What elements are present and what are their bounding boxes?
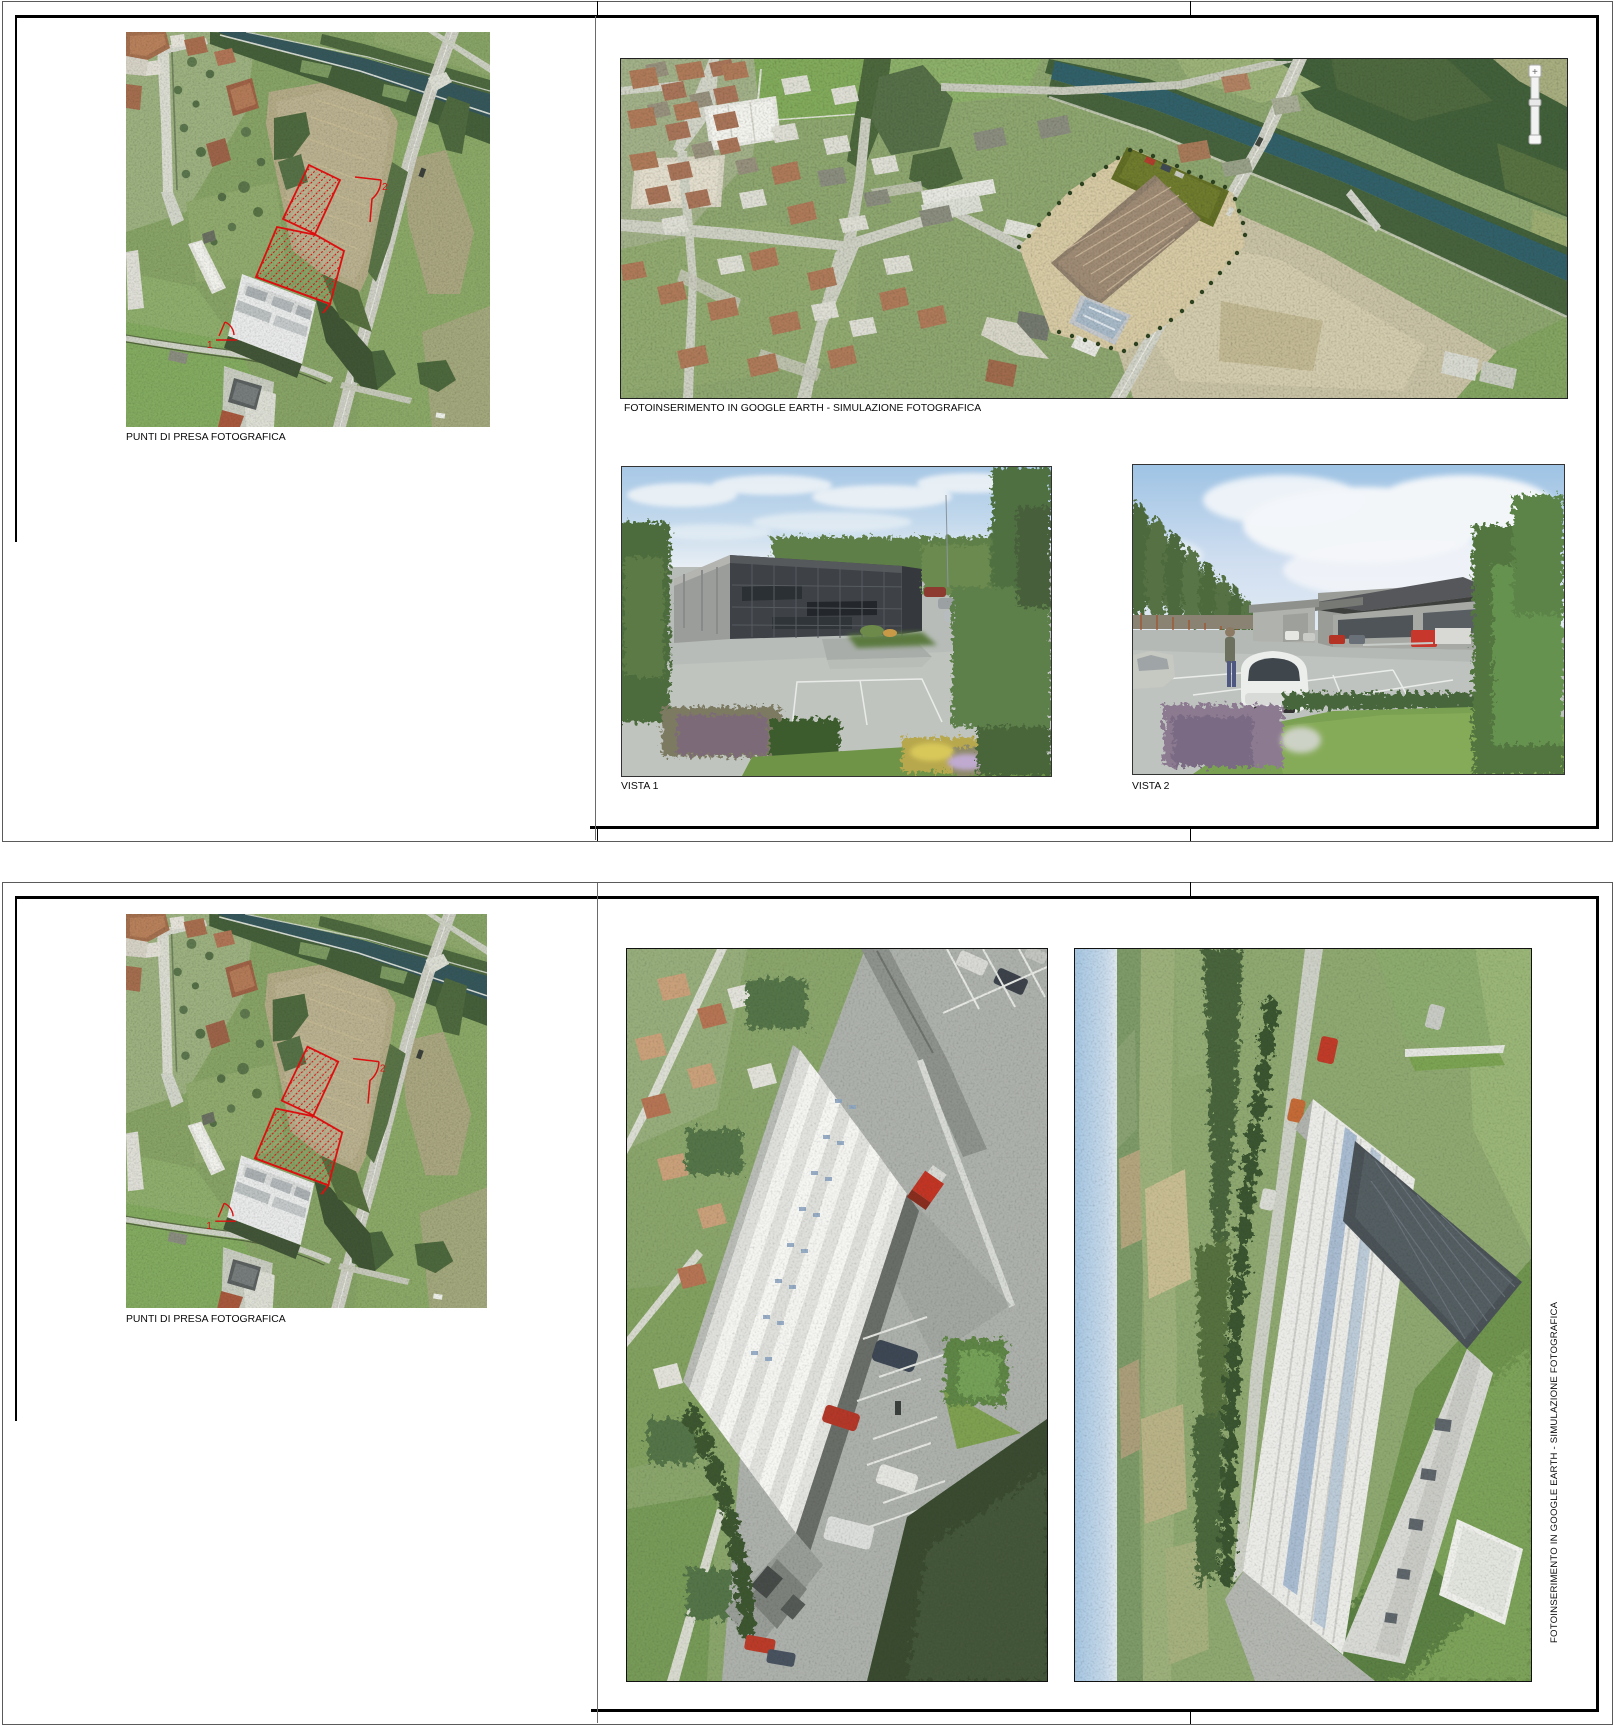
svg-text:1: 1 <box>207 340 213 351</box>
svg-text:2: 2 <box>380 1064 386 1075</box>
svg-text:+: + <box>1532 67 1538 78</box>
svg-text:1: 1 <box>206 1221 212 1232</box>
svg-text:2: 2 <box>382 182 388 193</box>
